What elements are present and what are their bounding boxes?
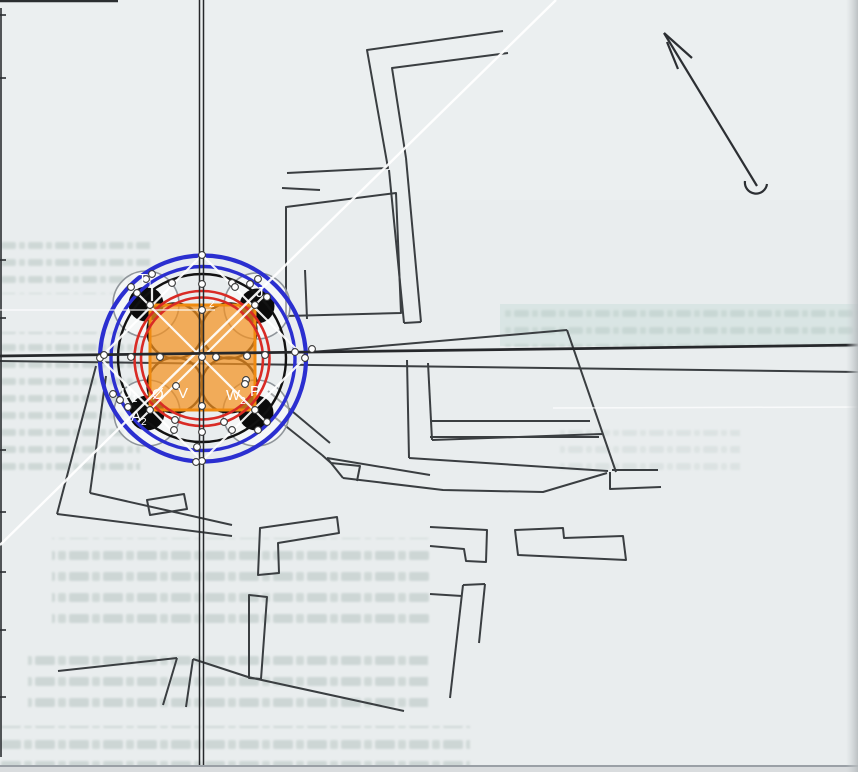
control-point[interactable]	[221, 419, 228, 426]
control-point[interactable]	[199, 429, 206, 436]
control-point[interactable]	[147, 407, 154, 414]
scanned-plan-page: T12JU1ØVW2PA2	[0, 0, 858, 772]
control-point[interactable]	[110, 391, 117, 398]
control-point[interactable]	[252, 407, 259, 414]
point-label-V: V	[178, 385, 188, 402]
control-point[interactable]	[128, 354, 135, 361]
control-point[interactable]	[244, 353, 251, 360]
control-point[interactable]	[213, 354, 220, 361]
point-label-P: P	[250, 383, 260, 400]
highlight-band	[500, 304, 858, 346]
control-point[interactable]	[309, 346, 316, 353]
control-point[interactable]	[264, 419, 271, 426]
control-point[interactable]	[194, 444, 201, 451]
plan-canvas: T12JU1ØVW2PA2	[0, 0, 858, 772]
control-point[interactable]	[147, 302, 154, 309]
control-point[interactable]	[101, 352, 108, 359]
control-point[interactable]	[169, 280, 176, 287]
control-point[interactable]	[149, 271, 156, 278]
control-point[interactable]	[247, 281, 254, 288]
control-point[interactable]	[157, 354, 164, 361]
control-point[interactable]	[199, 307, 206, 314]
control-point[interactable]	[302, 355, 309, 362]
control-point[interactable]	[193, 459, 200, 466]
control-point[interactable]	[199, 354, 206, 361]
control-point[interactable]	[264, 294, 271, 301]
control-point[interactable]	[242, 381, 249, 388]
control-point[interactable]	[232, 284, 239, 291]
control-point[interactable]	[172, 417, 179, 424]
point-label-J: J	[256, 284, 264, 301]
control-point[interactable]	[252, 302, 259, 309]
control-point[interactable]	[199, 281, 206, 288]
control-point[interactable]	[128, 284, 135, 291]
paper-sheen	[0, 0, 858, 200]
control-point[interactable]	[292, 349, 299, 356]
control-point[interactable]	[255, 276, 262, 283]
control-point[interactable]	[199, 403, 206, 410]
control-point[interactable]	[199, 252, 206, 259]
control-point[interactable]	[171, 427, 178, 434]
point-label-sub2: 2	[209, 299, 215, 310]
control-point[interactable]	[134, 290, 141, 297]
point-label-O: Ø	[152, 386, 164, 403]
control-point[interactable]	[262, 352, 269, 359]
control-point[interactable]	[255, 427, 262, 434]
page-right-shade	[846, 0, 858, 772]
scanner-bed-strip	[0, 767, 858, 772]
control-point[interactable]	[229, 427, 236, 434]
